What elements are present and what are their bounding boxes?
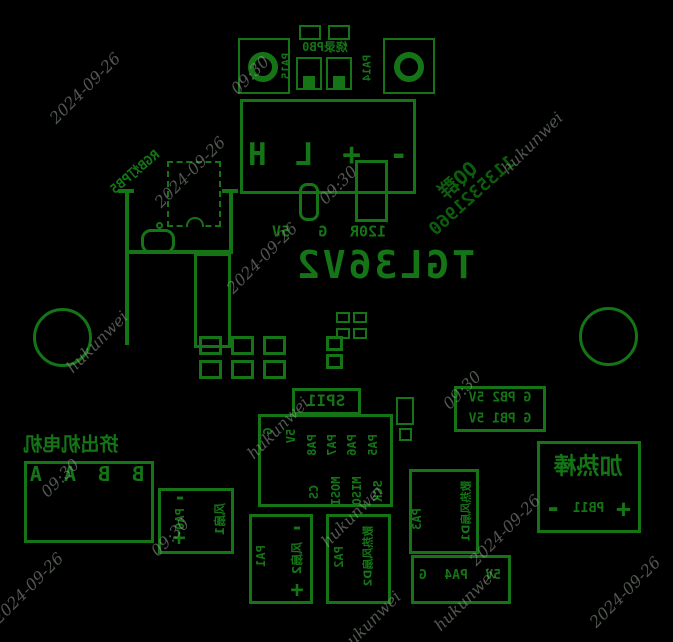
- part-number: TGL36V2: [294, 246, 475, 284]
- prog-label: 烧录PB0: [302, 41, 348, 53]
- label-120r: 120R: [350, 225, 386, 240]
- resistor-footprint: [355, 160, 388, 222]
- pb2-row: G PB2 5V: [469, 392, 532, 405]
- board-mirror-layer: PA15 PA14 烧录PB0 - + L H 120R G 5V TGL36V…: [0, 0, 673, 642]
- pcb-silkscreen-preview: PA15 PA14 烧录PB0 - + L H 120R G 5V TGL36V…: [0, 0, 673, 642]
- can-pin-h: H: [248, 137, 267, 173]
- pin-label-pa14: PA14: [362, 55, 373, 82]
- small-square-pad: [399, 428, 412, 441]
- heater-pin-plus: +: [616, 494, 631, 523]
- mount-hole-right: [579, 307, 638, 366]
- prog-pad-inner-2: [333, 76, 345, 88]
- pa4-header-pins: 5V PA4 G: [419, 560, 501, 590]
- spi-pin-mosi: MOSI: [330, 477, 342, 506]
- fan2-minus: -: [291, 517, 303, 537]
- label-g: G: [318, 225, 327, 240]
- prog-pad-small-2: [328, 25, 350, 40]
- pad-grid-cell: [263, 360, 286, 379]
- prog-pad-hole-pa14: [394, 52, 424, 82]
- spi-pin-sck: SCK: [372, 480, 384, 502]
- pa4-pin-g: G: [419, 568, 427, 583]
- pin1-dot: [156, 222, 163, 229]
- heater-pin-minus: -: [545, 493, 561, 524]
- fan1-minus: -: [174, 487, 186, 507]
- pad-pair-bottom: [326, 354, 343, 369]
- spi-pin-pa5: PA5: [367, 434, 379, 456]
- pa4-pin-pa4: PA4: [444, 568, 467, 583]
- can-pin-l: L: [295, 137, 314, 173]
- fan1-plus: +: [172, 528, 185, 550]
- fan4-label: 散热风扇D1: [461, 481, 472, 542]
- small-pad: [353, 328, 367, 339]
- qq-group-note: QQ群 1135321960: [410, 136, 520, 241]
- fan3-pin: PA2: [333, 546, 345, 568]
- heater-pin-pb11: PB11: [573, 501, 604, 516]
- can-pin-minus: -: [389, 137, 408, 173]
- chip-footprint: [194, 253, 231, 348]
- spi-pin-miso: MISO: [351, 477, 363, 506]
- pad-grid-cell: [263, 336, 286, 355]
- spi-pin-pa7: PA7: [326, 434, 338, 456]
- label-5v: 5V: [272, 225, 290, 240]
- fan3-label: 散热风扇D2: [363, 526, 374, 587]
- diode-footprint: [299, 183, 319, 221]
- heater-title: 加热棒: [554, 456, 623, 479]
- small-rect-pad: [396, 397, 414, 425]
- fan2-label: 风扇2: [291, 542, 303, 574]
- extruder-title: 挤出机电机: [23, 436, 118, 455]
- fan2-pin: PA1: [255, 545, 267, 567]
- pad-grid-cell: [231, 336, 254, 355]
- spi-pin-cs: CS: [308, 485, 320, 499]
- fan2-plus: +: [290, 580, 303, 602]
- small-pad: [336, 312, 350, 323]
- extruder-pins: B B A A: [30, 464, 144, 484]
- pb1-row: G PB1 5V: [469, 413, 532, 426]
- pad-pair-top: [326, 336, 343, 351]
- pa4-pin-5v: 5V: [485, 568, 501, 583]
- mount-hole-left: [33, 308, 92, 367]
- spi-pin-5v: 5V: [285, 429, 297, 443]
- spi-pin-pa8: PA8: [306, 434, 318, 456]
- pad-grid-cell: [199, 360, 222, 379]
- spi-pin-g: G: [262, 427, 274, 434]
- prog-pad-inner-1: [303, 76, 315, 88]
- prog-pad-hole-pa15: [248, 52, 278, 82]
- bracket-rail-left: [125, 193, 129, 345]
- small-pad: [353, 312, 367, 323]
- bracket-rail-right: [229, 193, 233, 250]
- fan4-pin: PA3: [411, 508, 423, 530]
- fan1-label: 风扇1: [214, 503, 226, 535]
- spi-pin-pa6: PA6: [346, 434, 358, 456]
- heater-pins: + PB11 -: [545, 494, 631, 522]
- prog-pad-small-1: [299, 25, 321, 40]
- spi-title: SPI1: [307, 393, 346, 409]
- pad-grid-cell: [231, 360, 254, 379]
- pin-label-pa15: PA15: [281, 53, 292, 80]
- pad-grid-cell: [199, 336, 222, 355]
